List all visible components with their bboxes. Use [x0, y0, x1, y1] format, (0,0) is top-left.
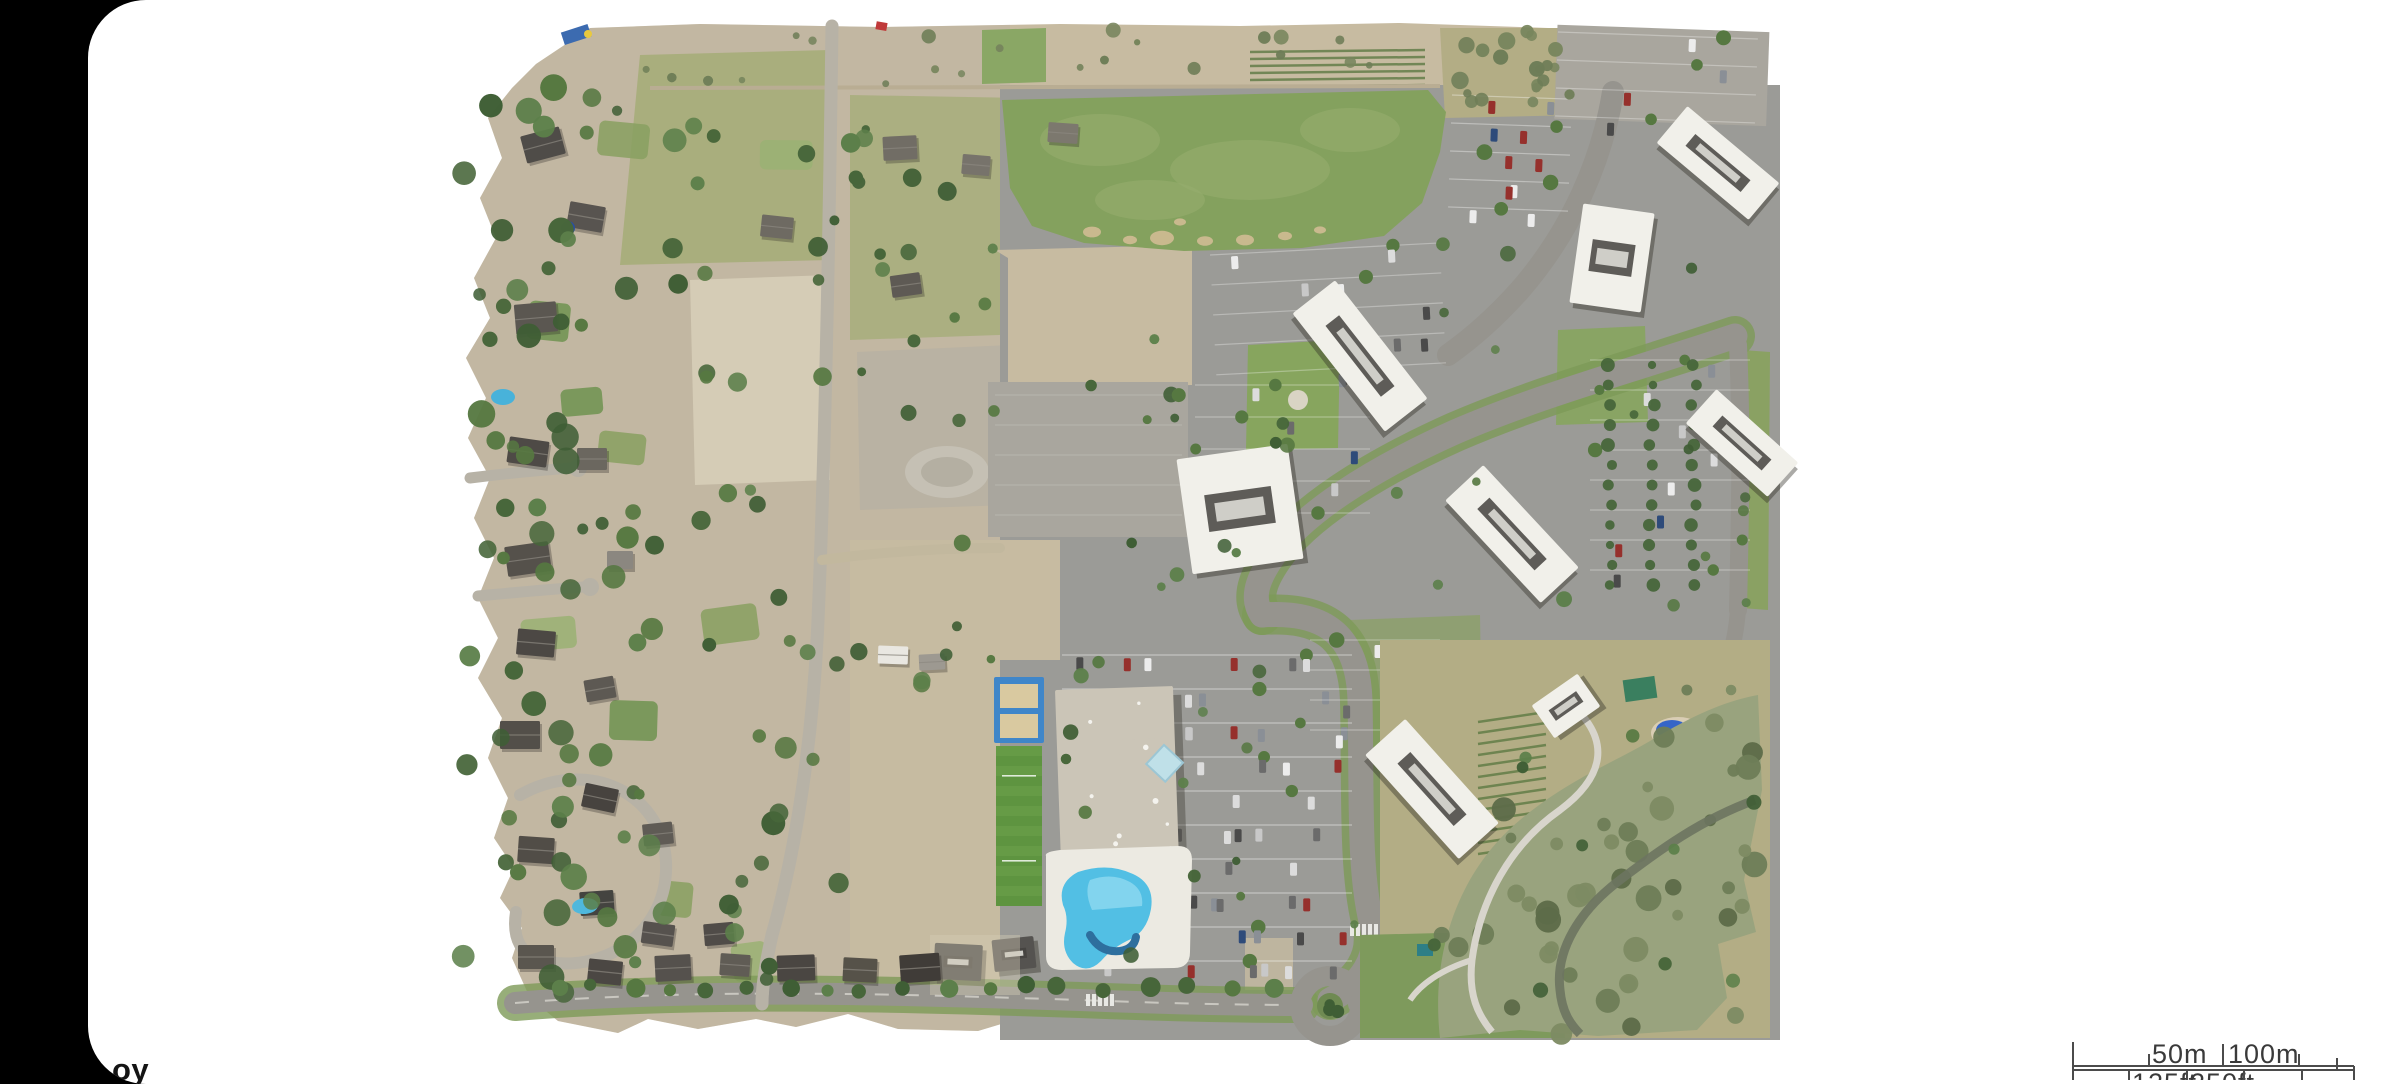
scale-bar: 50m 100m 125ft 250ft — [2073, 1039, 2354, 1080]
house-roof — [777, 954, 818, 984]
house-roof — [890, 272, 925, 301]
house-roof — [899, 952, 943, 986]
scale-label-100m: 100m — [2228, 1039, 2300, 1069]
house-roof — [640, 921, 677, 950]
orthomosaic-map[interactable] — [452, 20, 1801, 1045]
soccer-field — [996, 746, 1042, 906]
house-roof — [577, 448, 609, 473]
house-roof — [961, 154, 993, 180]
house-roof — [842, 957, 879, 986]
house-roof — [878, 645, 911, 667]
house-roof — [1047, 122, 1081, 147]
map-canvas: 50m 100m 125ft 250ft — [88, 0, 2400, 1080]
house-roof — [654, 954, 693, 985]
house-roof — [719, 953, 753, 980]
app-window: 50m 100m 125ft 250ft oy — [88, 0, 2400, 1084]
house-roof — [516, 628, 558, 660]
house-roof — [882, 135, 919, 164]
scale-label-50m: 50m — [2152, 1039, 2208, 1069]
house-roof — [517, 836, 557, 868]
house-roof — [760, 214, 796, 242]
